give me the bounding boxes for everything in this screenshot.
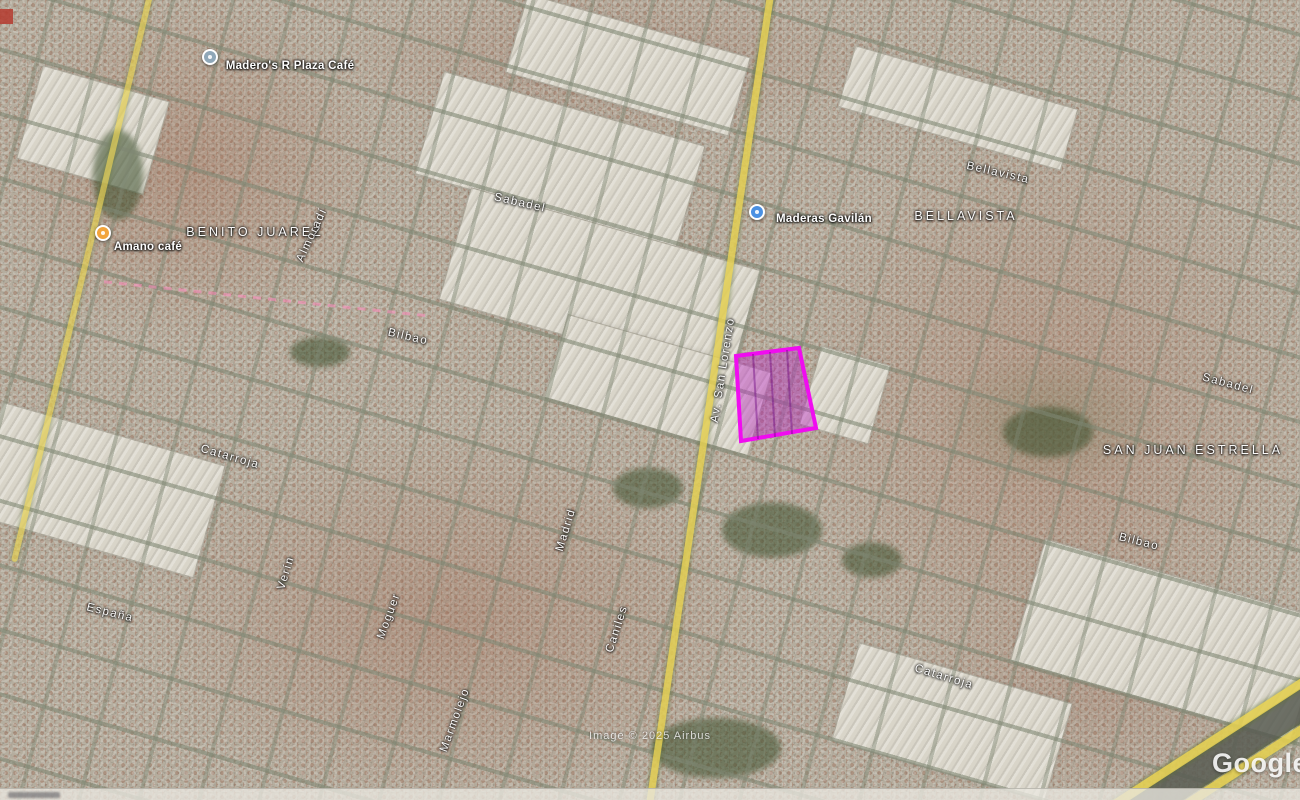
district-label-san-juan-estrella: SAN JUAN ESTRELLA: [1103, 443, 1283, 457]
google-earth-watermark: Google E: [1212, 748, 1300, 779]
bottom-ui-strip: [0, 788, 1300, 800]
highlighted-parcel-polygon[interactable]: [736, 348, 816, 441]
poi-label-label-amano-caf[interactable]: Amano café: [114, 241, 182, 253]
poi-marker-maderas-gavil-n[interactable]: [749, 204, 765, 220]
poi-marker-amano-caf[interactable]: [95, 225, 111, 241]
district-label-bellavista: BELLAVISTA: [914, 209, 1017, 223]
bottom-left-smudge: [8, 792, 60, 798]
poi-marker-madero-s-r-plaza-caf[interactable]: [202, 49, 218, 65]
selection-overlay: [0, 0, 1300, 800]
satellite-map-viewport[interactable]: BENITO JUAREZBELLAVISTASAN JUAN ESTRELLA…: [0, 0, 1300, 800]
poi-label-label-maderas-gavil-n[interactable]: Maderas Gavilán: [776, 213, 872, 225]
imagery-attribution: Image © 2025 Airbus: [589, 730, 711, 742]
poi-label-label-madero-s-r-plaza-caf[interactable]: Madero's R Plaza Café: [226, 60, 355, 72]
